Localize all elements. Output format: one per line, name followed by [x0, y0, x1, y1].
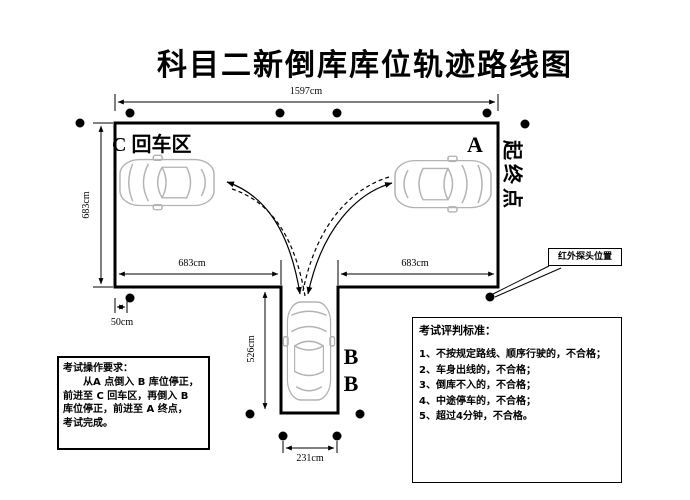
point-a-label: A	[467, 134, 483, 156]
sensor-dot	[333, 109, 342, 118]
start-end-point-label: 起终点	[500, 140, 529, 212]
judging-criteria-item: 5、超过4分钟，不合格。	[419, 409, 615, 425]
sensor-dot	[486, 293, 495, 302]
operation-requirements-box: 考试操作要求： 从A 点倒入 B 库位停正， 前进至 C 回车区，再倒入 B 库…	[57, 356, 210, 450]
judging-criteria-item: 4、中途停车的，不合格；	[419, 394, 615, 410]
judging-criteria-item: 1、不按规定路线、顺序行驶的，不合格；	[419, 347, 615, 363]
sensor-dot	[126, 109, 135, 118]
judging-box-title: 考试评判标准：	[419, 323, 615, 338]
sensor-dot	[279, 432, 288, 441]
trajectory-left-dashed	[232, 189, 305, 296]
point-b-label-1: B	[344, 346, 359, 368]
zone-c-label: C 回车区	[112, 128, 191, 157]
point-b-label-2: B	[344, 373, 359, 395]
sensor-dot	[356, 410, 365, 419]
sensor-callout-box: 红外探头位置	[548, 248, 622, 266]
dim-label-bottom-left: 683cm	[178, 259, 205, 269]
trajectory-curves	[227, 177, 392, 296]
page-title: 科目二新倒库库位轨迹路线图	[20, 40, 690, 84]
operation-box-line: 前进至 C 回车区，再倒入 B	[63, 390, 204, 404]
sensor-dot	[246, 410, 255, 419]
judging-criteria-box: 考试评判标准： 1、不按规定路线、顺序行驶的，不合格； 2、车身出线的，不合格；…	[412, 317, 622, 483]
judging-criteria-item: 3、倒库不入的，不合格；	[419, 378, 615, 394]
operation-box-title: 考试操作要求：	[63, 362, 204, 376]
dim-label-left-height: 683cm	[82, 191, 92, 218]
dim-label-bay-depth: 526cm	[247, 335, 257, 362]
sensor-dot	[521, 120, 530, 129]
diagram-page: 科目二新倒库库位轨迹路线图 1597cm 683cm 683cm 683cm 5…	[0, 0, 690, 500]
sensor-dot	[76, 119, 85, 128]
operation-box-line: 从A 点倒入 B 库位停正，	[63, 376, 204, 390]
dim-label-sensor-offset: 50cm	[111, 318, 133, 328]
dim-label-bottom-right: 683cm	[401, 259, 428, 269]
sensor-leader-lines	[493, 266, 561, 297]
sensor-dot	[483, 109, 492, 118]
sensor-dot	[333, 432, 342, 441]
car-zone-c-icon	[120, 155, 214, 209]
sensor-dot	[126, 294, 135, 303]
trajectory-left-solid	[227, 182, 300, 294]
dim-label-top-width: 1597cm	[290, 87, 322, 97]
operation-box-line: 考试完成。	[63, 417, 204, 431]
car-point-a-icon	[395, 156, 491, 212]
car-bay-icon	[283, 302, 334, 400]
operation-box-line: 库位停正，前进至 A 终点，	[63, 403, 204, 417]
dim-label-bay-width: 231cm	[296, 454, 323, 464]
sensor-dot	[276, 109, 285, 118]
judging-criteria-item: 2、车身出线的，不合格；	[419, 363, 615, 379]
